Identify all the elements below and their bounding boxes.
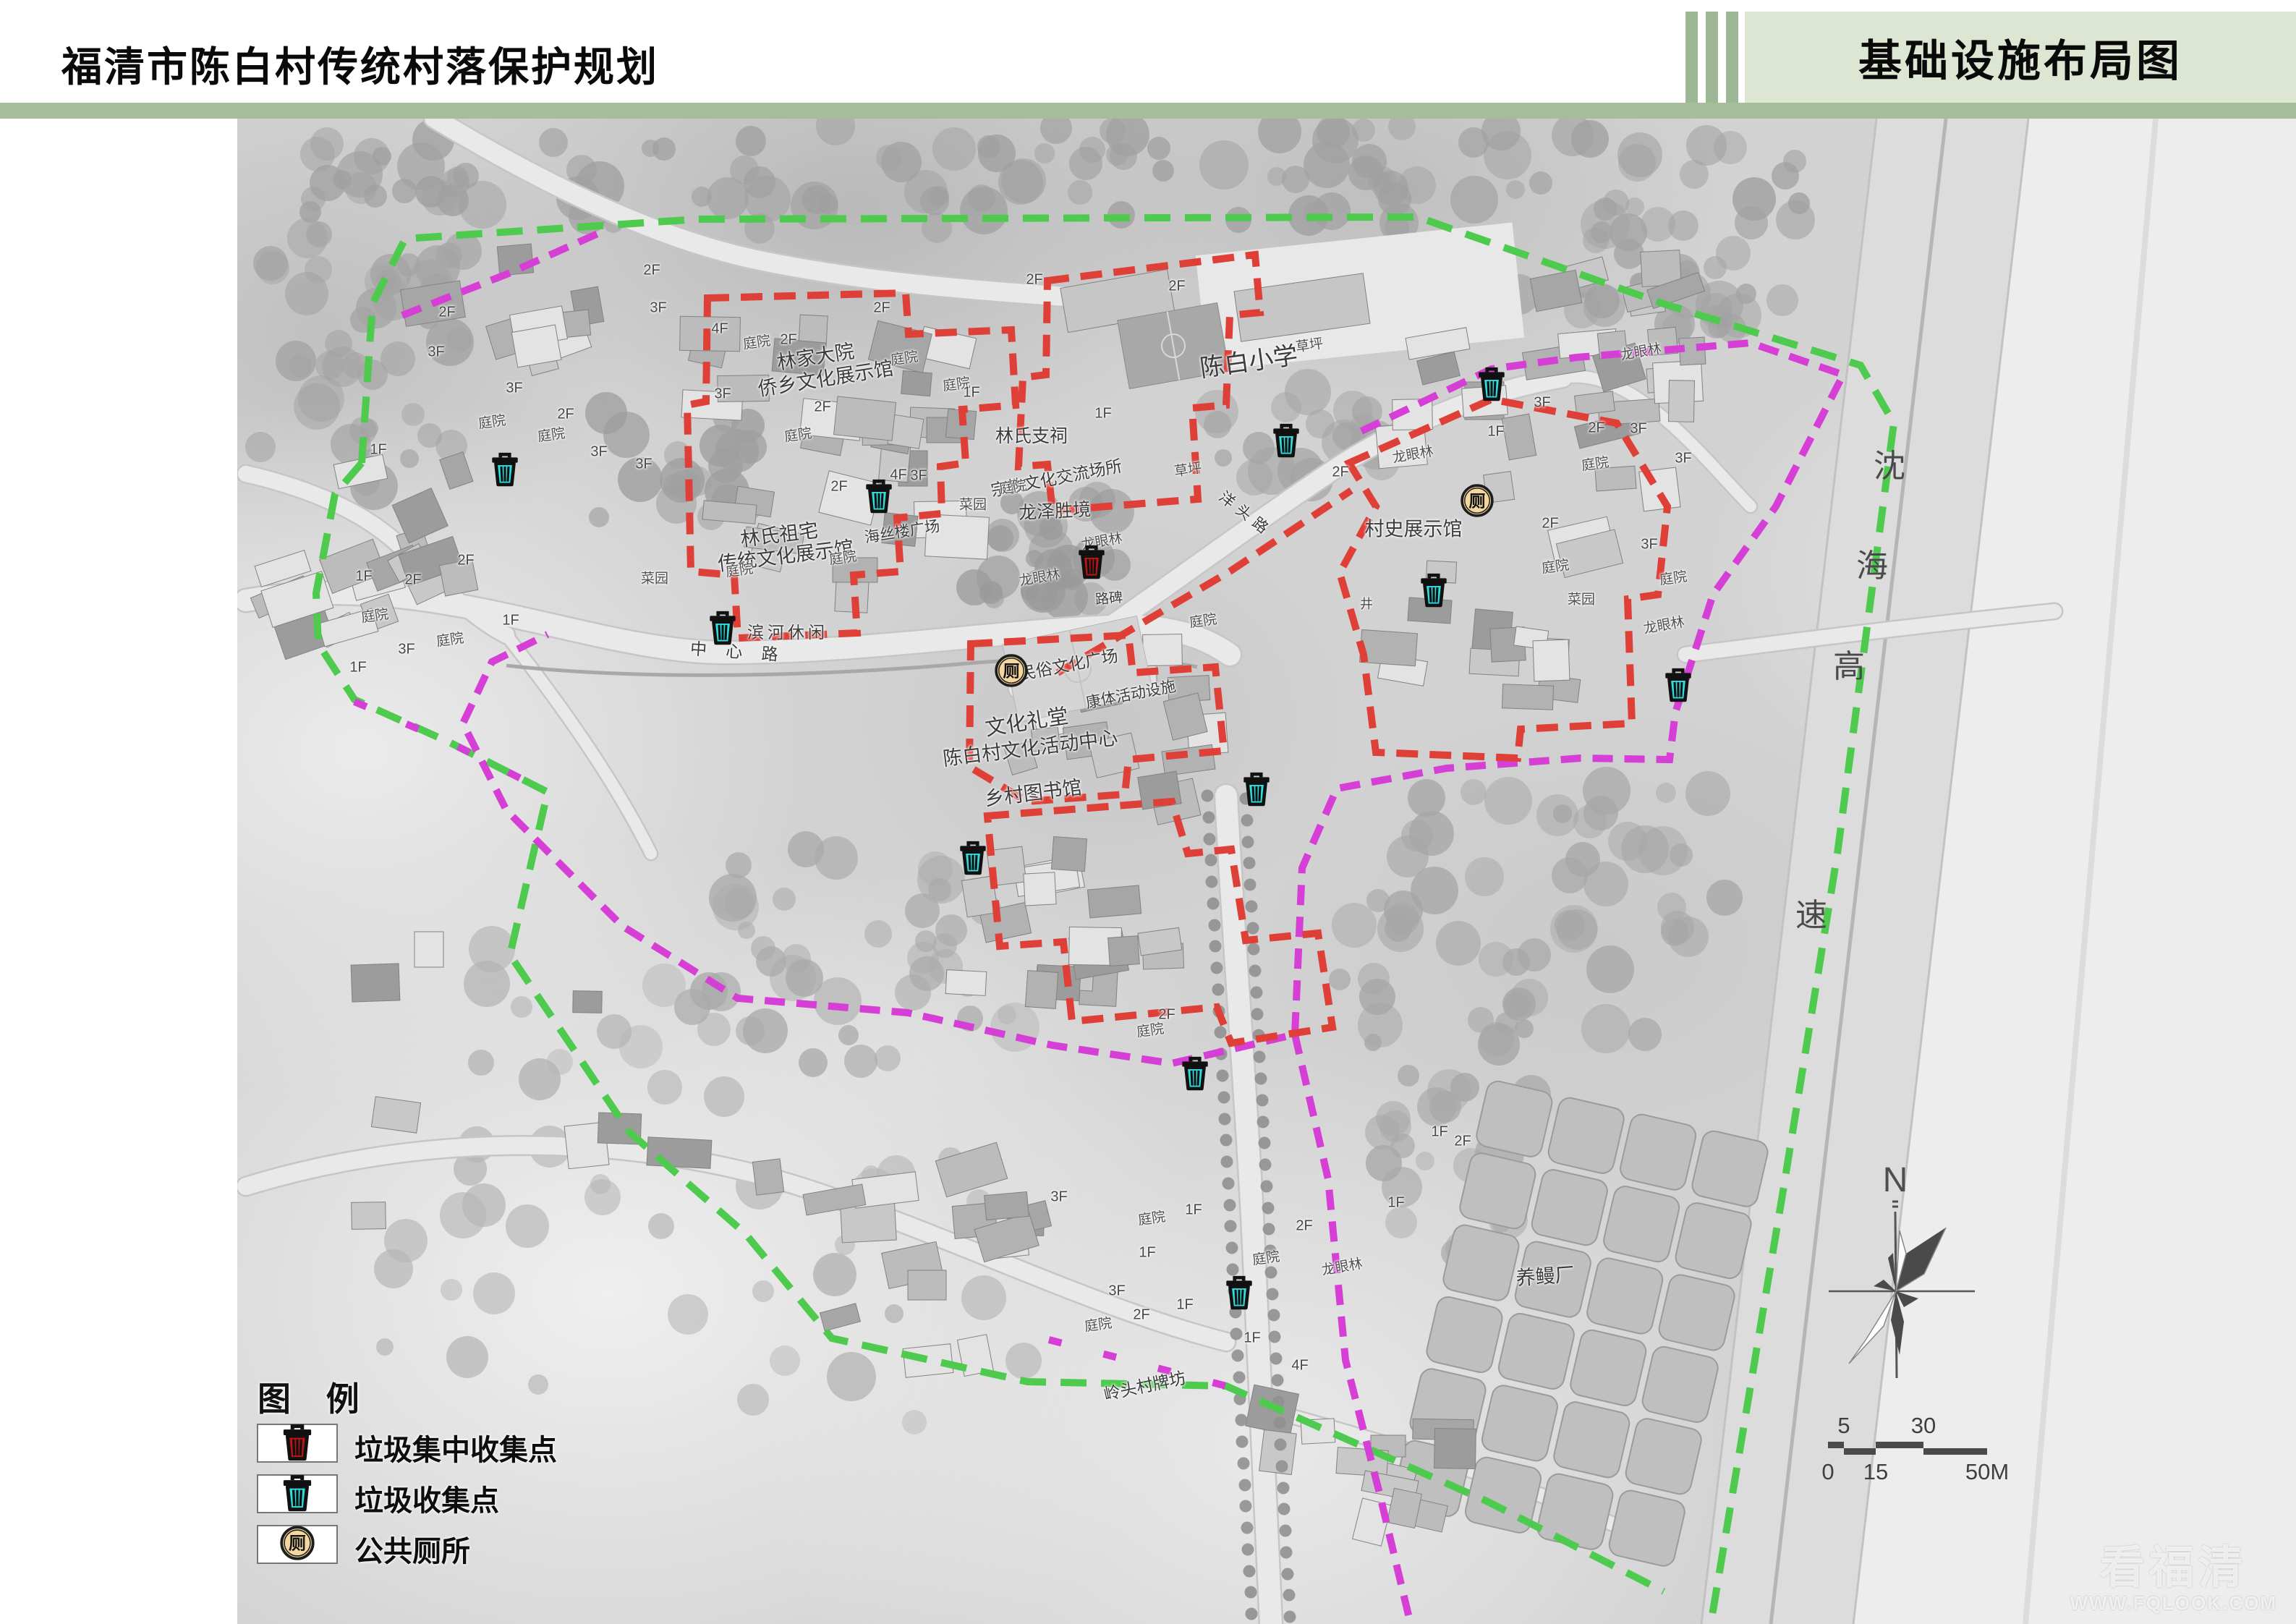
map-label: 2F: [1133, 1307, 1149, 1324]
scale-bar-segment: [1828, 1442, 1844, 1448]
map-label: 2F: [1168, 279, 1185, 295]
map-label: 井: [1360, 594, 1373, 613]
map-label: 庭院: [741, 330, 771, 353]
trash-bin-cyan-icon: [1664, 666, 1693, 706]
map-label: 3F: [1534, 395, 1550, 412]
map-label: 2F: [1332, 464, 1348, 481]
svg-text:厕: 厕: [1469, 491, 1486, 510]
map-label: 1F: [1139, 1245, 1155, 1262]
map-label: 龙泽胜境: [1018, 495, 1092, 524]
map-label: 1F: [963, 385, 979, 401]
toilet-icon: 厕: [1460, 483, 1494, 522]
map-label: 3F: [398, 642, 414, 658]
map-label: 高: [1833, 640, 1865, 686]
map-label: 菜园: [641, 568, 668, 587]
svg-text:厕: 厕: [1003, 661, 1020, 680]
map-label: 1F: [1176, 1297, 1193, 1314]
map-label: 3F: [635, 456, 652, 473]
map-label: 3F: [590, 444, 607, 461]
map-label: 3F: [910, 468, 927, 485]
map-label: 1F: [1487, 424, 1504, 441]
compass-north-label: N: [1883, 1161, 1908, 1199]
map-label: 2F: [814, 399, 830, 416]
map-label: 2F: [1296, 1218, 1312, 1235]
map-label: 菜园: [1568, 589, 1595, 608]
toilet-icon: 厕: [279, 1525, 315, 1565]
trash-bin-cyan-icon: [281, 1473, 313, 1515]
trash-bin-red-icon: [1077, 543, 1106, 583]
map-label: 庭院: [1083, 1312, 1113, 1335]
trash-bin-cyan-icon: [1225, 1274, 1254, 1314]
map-label: 3F: [1630, 421, 1646, 438]
map-label: 2F: [1542, 516, 1558, 532]
trash-bin-red-icon: [281, 1422, 313, 1465]
map-label: 1F: [370, 442, 386, 459]
map-label: 村史展示馆: [1365, 514, 1463, 542]
map-label: 庭院: [536, 422, 566, 446]
map-label: 2F: [873, 300, 890, 317]
map-label: 林氏支祠: [995, 422, 1068, 448]
scale-bar-segment: [1876, 1442, 1923, 1448]
trash-bin-cyan-icon: [1181, 1055, 1209, 1094]
map-label: 2F: [1158, 1007, 1175, 1024]
map-label: 庭院: [435, 627, 464, 650]
trash-bin-cyan-icon: [864, 477, 893, 517]
map-label: 养鳗厂: [1515, 1259, 1576, 1291]
svg-text:厕: 厕: [289, 1534, 306, 1553]
legend-symbol-public-toilet: 厕: [257, 1525, 338, 1564]
map-label: 速: [1795, 889, 1827, 935]
map-label: 菜园: [959, 494, 987, 514]
trash-bin-cyan-icon: [1419, 571, 1448, 611]
map-label: 草坪: [1173, 457, 1202, 480]
map-label: 2F: [780, 332, 796, 349]
scale-label: 5: [1837, 1413, 1850, 1439]
map-label: 3F: [1108, 1283, 1125, 1300]
map-label: 3F: [1050, 1189, 1067, 1206]
map-label: 3F: [714, 386, 731, 403]
legend-symbol-garbage-point: [257, 1474, 338, 1513]
map-label: 2F: [1588, 420, 1604, 437]
map-label: 2F: [404, 572, 421, 589]
legend-label: 垃圾集中收集点: [354, 1427, 557, 1468]
legend-title: 图 例: [258, 1373, 373, 1421]
map-label: 1F: [355, 569, 372, 585]
trash-bin-cyan-icon: [958, 839, 987, 879]
trash-bin-cyan-icon: [1477, 365, 1506, 405]
map-label: 庭院: [1580, 451, 1610, 475]
map-label: 4F: [711, 321, 728, 338]
map-label: 1F: [349, 660, 366, 676]
map-label: 2F: [438, 305, 455, 321]
map-label: 1F: [1387, 1195, 1404, 1212]
map-label: 草坪: [1294, 333, 1324, 356]
map-label: 2F: [1454, 1134, 1471, 1150]
scale-label: 50M: [1965, 1459, 2009, 1485]
map-label: 1F: [1094, 406, 1111, 422]
legend-symbol-garbage-central: [257, 1424, 338, 1463]
map-label: 1F: [1431, 1124, 1447, 1141]
map-label: 沈: [1874, 440, 1905, 486]
map-label: 庭院: [1136, 1206, 1166, 1229]
toilet-icon: 厕: [994, 653, 1029, 692]
legend-label: 公共厕所: [354, 1528, 470, 1570]
map-label: 庭院: [889, 346, 919, 369]
map-label: 3F: [428, 344, 444, 361]
watermark-url: WWW.FQLOOK.COM: [2070, 1593, 2277, 1614]
map-label: 2F: [557, 407, 574, 423]
map-label: 1F: [1185, 1202, 1202, 1219]
scale-bar-segment: [1923, 1448, 1987, 1455]
compass-rose: N: [1823, 1161, 2011, 1403]
trash-bin-cyan-icon: [490, 451, 519, 490]
map-label: 海: [1856, 540, 1888, 586]
map-label: 庭院: [1188, 608, 1217, 632]
watermark: 看福清 WWW.FQLOOK.COM: [2070, 1544, 2277, 1614]
map-label: 庭院: [783, 422, 812, 446]
map-label: 庭院: [998, 475, 1027, 498]
map-label: 3F: [1641, 537, 1657, 553]
map-label: 路碑: [1094, 587, 1123, 608]
map-label: 庭院: [828, 545, 857, 569]
map-label: 庭院: [724, 558, 754, 581]
map-label: 3F: [650, 300, 666, 317]
watermark-text: 看福清: [2070, 1544, 2277, 1593]
trash-bin-cyan-icon: [708, 609, 737, 649]
scale-bar: 53001550M: [1812, 1407, 2029, 1479]
map-label: 2F: [1026, 272, 1042, 289]
map-label: 3F: [1675, 451, 1691, 467]
scale-label: 30: [1911, 1413, 1936, 1439]
map-label: 2F: [830, 479, 847, 496]
map-label: 1F: [502, 613, 519, 629]
legend-label: 垃圾收集点: [354, 1477, 499, 1519]
map-label: 庭院: [1540, 554, 1570, 577]
map-label: 1F: [1243, 1330, 1260, 1347]
map-label: 2F: [457, 553, 474, 569]
map-label: 4F: [1291, 1358, 1308, 1374]
planning-map-page: 福清市陈白村传统村落保护规划 基础设施布局图 陈白小学林氏支祠宗教文化交流场所龙…: [0, 0, 2296, 1624]
map-label: 庭院: [1251, 1246, 1280, 1269]
map-label: 庭院: [360, 603, 389, 626]
map-label: 庭院: [477, 409, 506, 433]
map-label: 3F: [506, 381, 522, 397]
map-label: 庭院: [1658, 566, 1688, 589]
trash-bin-cyan-icon: [1242, 770, 1271, 810]
trash-bin-cyan-icon: [1272, 422, 1301, 462]
scale-label: 0: [1821, 1459, 1834, 1485]
scale-bar-segment: [1844, 1448, 1876, 1455]
scale-label: 15: [1863, 1459, 1888, 1485]
map-label: 2F: [643, 263, 660, 279]
